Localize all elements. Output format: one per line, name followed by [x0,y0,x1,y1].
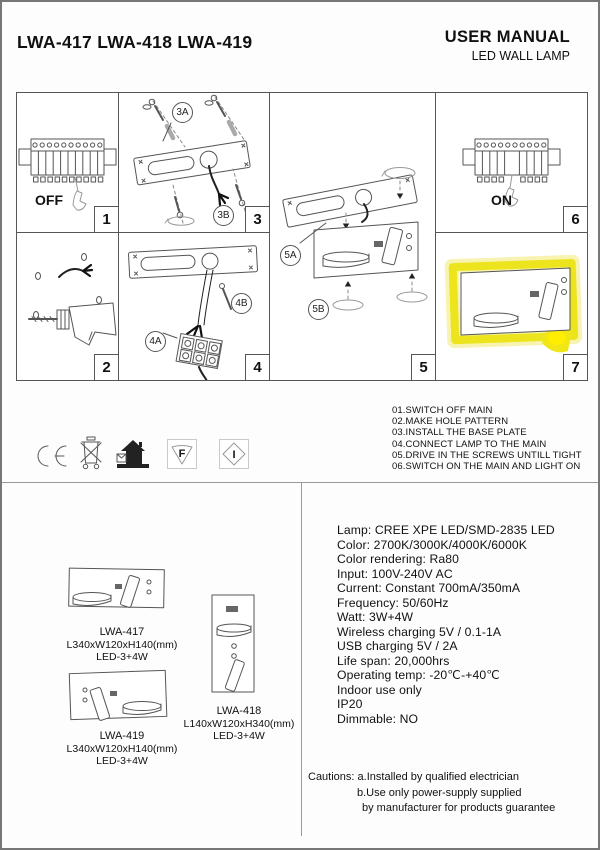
pointing-hand [73,191,86,210]
spec-line: Frequency: 50/60Hz [337,596,555,611]
step-panel-7: 7 [435,232,588,381]
lwa-417-label: LWA-417 L340xW120xH140(mm) LED-3+4W [42,626,202,664]
class-i-letter: I [232,449,235,461]
caution-line-a: Cautions: a.Installed by qualified elect… [308,770,555,786]
step-number-1: 1 [94,206,118,232]
caution-line-b: b.Use only power-supply supplied [308,786,555,802]
step-panel-5: 5A 5B 5 [269,92,436,381]
product-led: LED-3+4W [42,755,202,768]
step-text: 06.SWITCH ON THE MAIN AND LIGHT ON [392,461,582,472]
drill [29,303,116,345]
caution-line-c: by manufacturer for products guarantee [308,801,555,817]
cautions-block: Cautions: a.Installed by qualified elect… [308,770,555,817]
spec-line: Current: Constant 700mA/350mA [337,581,555,596]
spec-line: Dimmable: NO [337,712,555,727]
usb-port [530,291,539,297]
rotate-arrow [333,300,363,310]
product-dimensions: L140xW120xH340(mm) [174,718,304,731]
spec-line: USB charging 5V / 2A [337,639,555,654]
lwa-418-drawing [202,580,272,702]
step-number-3: 3 [245,206,269,232]
step-text: 01.SWITCH OFF MAIN [392,405,582,416]
class-i-icon: I [219,439,249,469]
spec-line: Lamp: CREE XPE LED/SMD-2835 LED [337,523,555,538]
mount-lamp-diagram [270,93,435,380]
terminal-block [176,334,222,369]
rotate-arrow [397,292,427,302]
tag-4b: 4B [231,293,252,314]
manual-subtitle: LED WALL LAMP [445,49,570,63]
base-plate [128,246,257,279]
f-mark-letter: F [179,448,186,460]
spec-line: Operating temp: -20℃-+40℃ [337,668,555,683]
indoor-use-house-icon [116,438,150,470]
product-model: LWA-417 [42,626,202,639]
model-numbers-heading: LWA-417 LWA-418 LWA-419 [17,32,252,53]
base-plate [283,175,418,228]
step-text: 03.INSTALL THE BASE PLATE [392,427,582,438]
specifications-list: Lamp: CREE XPE LED/SMD-2835 LED Color: 2… [337,523,555,726]
spec-line: Wireless charging 5V / 0.1-1A [337,625,555,640]
step-number-6: 6 [563,206,587,232]
tag-3a: 3A [172,102,193,123]
manual-header: USER MANUAL LED WALL LAMP [445,28,570,63]
step-number-7: 7 [563,354,587,380]
lwa-419-drawing [58,666,184,728]
weee-crossed-bin-icon [76,435,106,471]
spec-line: Color: 2700K/3000K/4000K/6000K [337,538,555,553]
step-panel-3: 3A 3B 3 [118,92,270,233]
off-label: OFF [35,192,63,208]
tag-5b: 5B [308,299,329,320]
product-led: LED-3+4W [42,651,202,664]
product-dimensions: L340xW120xH140(mm) [42,743,202,756]
cautions-label: Cautions: [308,771,354,783]
tag-3b: 3B [213,205,234,226]
spec-line: Indoor use only [337,683,555,698]
spec-line: Watt: 3W+4W [337,610,555,625]
manual-page: LWA-417 LWA-418 LWA-419 USER MANUAL LED … [0,0,600,850]
tag-4a: 4A [145,331,166,352]
on-label: ON [491,192,512,208]
step-panel-4: 4A 4B 4 [118,232,270,381]
step-number-5: 5 [411,354,435,380]
installation-steps-list: 01.SWITCH OFF MAIN 02.MAKE HOLE PATTERN … [392,405,582,472]
section-divider-vertical [301,482,302,836]
product-model: LWA-418 [174,705,304,718]
usb-port [374,241,383,247]
product-led: LED-3+4W [174,730,304,743]
spec-line: Color rendering: Ra80 [337,552,555,567]
ce-mark-icon [26,443,68,469]
mains-wire [59,269,83,277]
base-plate [134,141,251,186]
step-panel-6: ON 6 [435,92,588,233]
step-text: 04.CONNECT LAMP TO THE MAIN [392,439,582,450]
product-dimensions: L340xW120xH140(mm) [42,639,202,652]
step-text: 02.MAKE HOLE PATTERN [392,416,582,427]
spec-line: Life span: 20,000hrs [337,654,555,669]
step-number-4: 4 [245,354,269,380]
step-number-2: 2 [94,354,118,380]
lwa-417-drawing [58,566,184,624]
step-text: 05.DRIVE IN THE SCREWS UNTILL TIGHT [392,450,582,461]
tag-5a: 5A [280,245,301,266]
spec-line: Input: 100V-240V AC [337,567,555,582]
lwa-418-label: LWA-418 L140xW120xH340(mm) LED-3+4W [174,705,304,743]
step-panel-2: 2 [16,232,119,381]
step-panel-1: OFF 1 [16,92,119,233]
manual-title: USER MANUAL [445,28,570,47]
spec-line: IP20 [337,697,555,712]
f-mark-icon: F [167,439,197,469]
